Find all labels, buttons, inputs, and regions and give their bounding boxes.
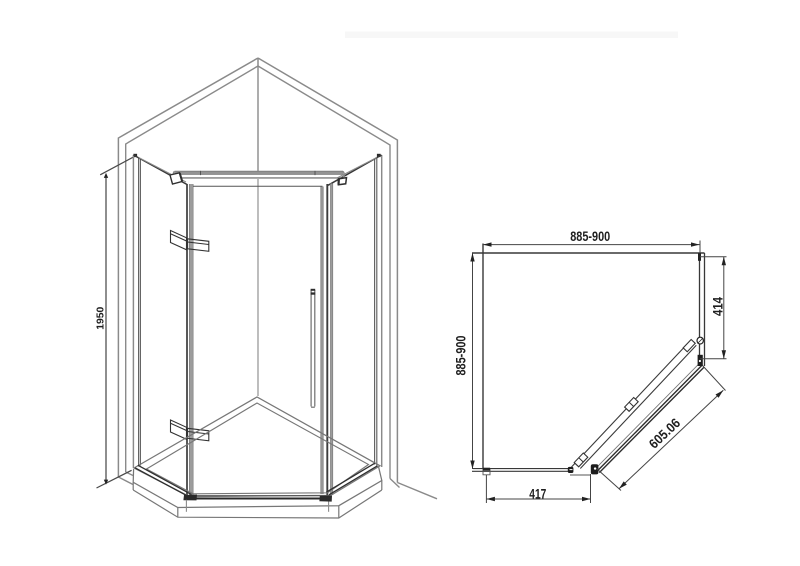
svg-text:885-900: 885-900 [570, 229, 610, 244]
svg-text:1950: 1950 [95, 306, 106, 329]
svg-text:885-900: 885-900 [453, 336, 468, 376]
svg-text:417: 417 [529, 486, 546, 502]
svg-text:414: 414 [709, 297, 725, 316]
